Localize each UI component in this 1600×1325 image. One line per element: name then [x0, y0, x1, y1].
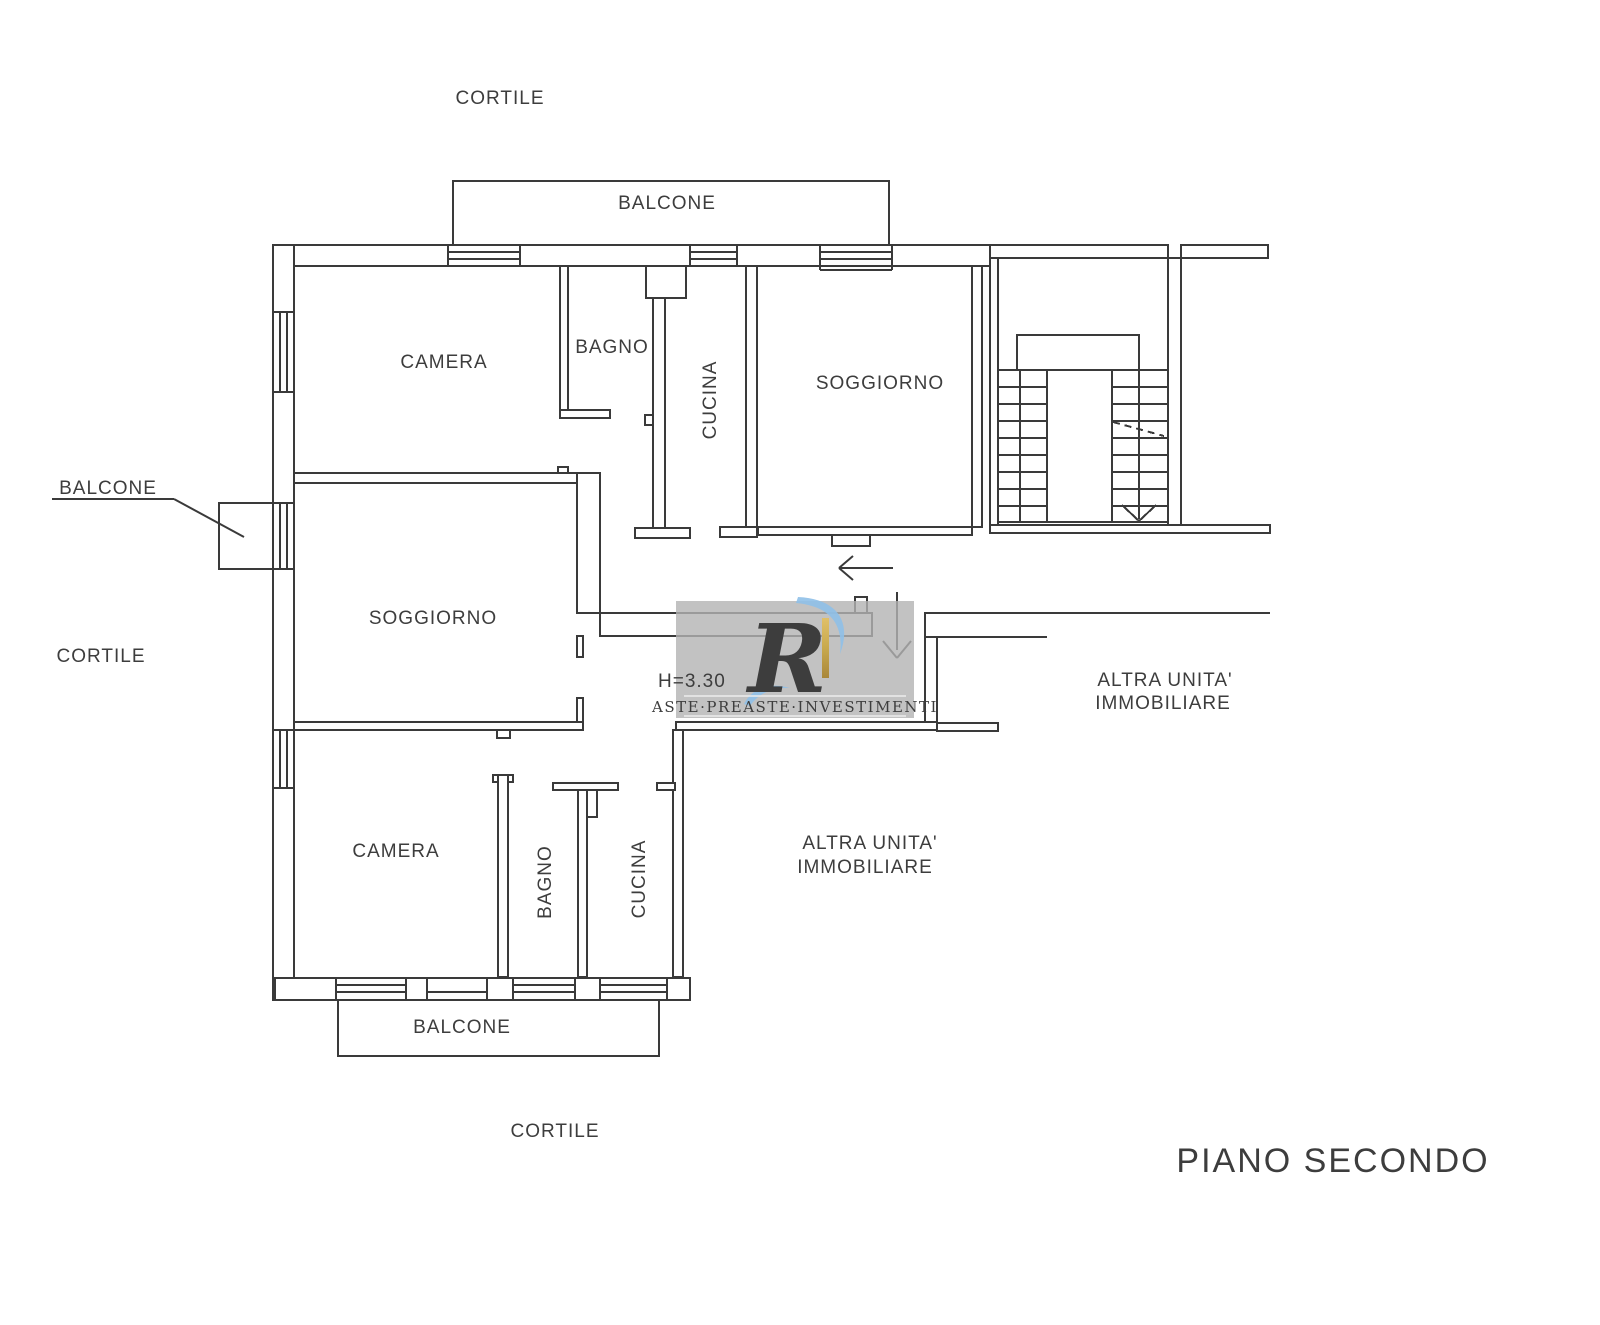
wall-stairwell-bottom	[990, 525, 1270, 533]
door-notch-soggiorno-mid	[497, 730, 510, 738]
wall-stairwell-right	[1168, 258, 1181, 528]
wall-bagno-foot	[560, 410, 610, 418]
label-balcone-top: BALCONE	[618, 193, 716, 214]
floor-title: PIANO SECONDO	[1176, 1142, 1489, 1180]
door-threshold-soggiorno-top	[832, 535, 870, 546]
wall-top	[273, 245, 990, 266]
wall-tbar-bagno-bottom	[553, 783, 618, 790]
wall-soggiorno-mid-right	[577, 473, 600, 613]
label-camera-bottom: CAMERA	[352, 841, 439, 862]
wall-soggiorno-top-left	[746, 266, 757, 527]
door-jamb-bagno-top	[645, 415, 653, 425]
door-jamb-cucina-bottom	[657, 783, 675, 790]
wall-cucina-bottom-right	[673, 730, 683, 977]
label-altra-unita-center-2: IMMOBILIARE	[797, 857, 933, 878]
wall-soggiorno-mid-bottom	[294, 722, 583, 730]
label-balcone-bottom: BALCONE	[413, 1017, 511, 1038]
wall-top-right	[1181, 245, 1268, 258]
wall-top-stairwell	[990, 245, 1168, 258]
wall-stub-upper	[577, 636, 583, 657]
wall-corridor-bottom	[676, 722, 937, 730]
wall-soggiorno-foot	[720, 527, 757, 537]
watermark-monogram-bar	[822, 618, 829, 678]
wall-corridor-stub	[937, 723, 998, 731]
label-cortile-left: CORTILE	[56, 646, 145, 667]
label-cortile-bottom: CORTILE	[510, 1121, 599, 1142]
watermark-wordmark: ASTE·PREASTE·INVESTIMENTI	[651, 698, 938, 716]
door-notch-camera-top	[558, 467, 568, 473]
wall-bottom	[275, 978, 690, 1000]
wall-soggiorno-top-bottom	[758, 527, 972, 535]
label-cucina-top: CUCINA	[700, 361, 721, 440]
label-cucina-bottom: CUCINA	[629, 840, 650, 919]
wall-camera-bagno-bottom	[498, 775, 508, 977]
wall-altra-right	[925, 613, 1270, 637]
wall-camera-soggiorno-mid	[294, 473, 577, 483]
label-altra-unita-right-2: IMMOBILIARE	[1095, 693, 1231, 714]
label-altra-unita-right-1: ALTRA UNITA'	[1097, 670, 1232, 691]
wall-stub-lower	[577, 698, 583, 722]
label-bagno-top: BAGNO	[575, 337, 649, 358]
wall-step-cucina-bottom	[587, 790, 597, 817]
label-cortile-top: CORTILE	[455, 88, 544, 109]
floor-plan-page: R ASTE·PREASTE·INVESTIMENTI CORTILE BALC…	[0, 0, 1600, 1325]
label-balcone-left: BALCONE	[59, 478, 157, 499]
wall-left	[273, 245, 294, 1000]
wall-soggiorno-top-right	[972, 266, 982, 527]
label-bagno-bottom: BAGNO	[535, 845, 556, 919]
watermark: R ASTE·PREASTE·INVESTIMENTI	[651, 597, 938, 718]
label-height-annotation: H=3.30	[658, 671, 726, 692]
label-soggiorno-middle: SOGGIORNO	[369, 608, 497, 629]
wall-stairwell-left	[990, 258, 998, 533]
entrance-arrow-left	[839, 556, 893, 580]
balcony-left-outline	[219, 503, 275, 569]
wall-bagno-cucina-top	[653, 266, 665, 533]
wall-cucina-bottom-stub	[635, 528, 690, 538]
floor-plan-svg: R ASTE·PREASTE·INVESTIMENTI CORTILE BALC…	[0, 0, 1600, 1325]
wall-camera-bagno-top	[560, 266, 568, 418]
balcone-left-leader-line	[52, 499, 244, 537]
wall-bagno-cucina-bottom	[578, 790, 587, 977]
staircase	[998, 335, 1168, 522]
label-soggiorno-top: SOGGIORNO	[816, 373, 944, 394]
balcony-door-cucina-top	[646, 266, 686, 298]
label-altra-unita-center-1: ALTRA UNITA'	[802, 833, 937, 854]
label-camera-top: CAMERA	[400, 352, 487, 373]
